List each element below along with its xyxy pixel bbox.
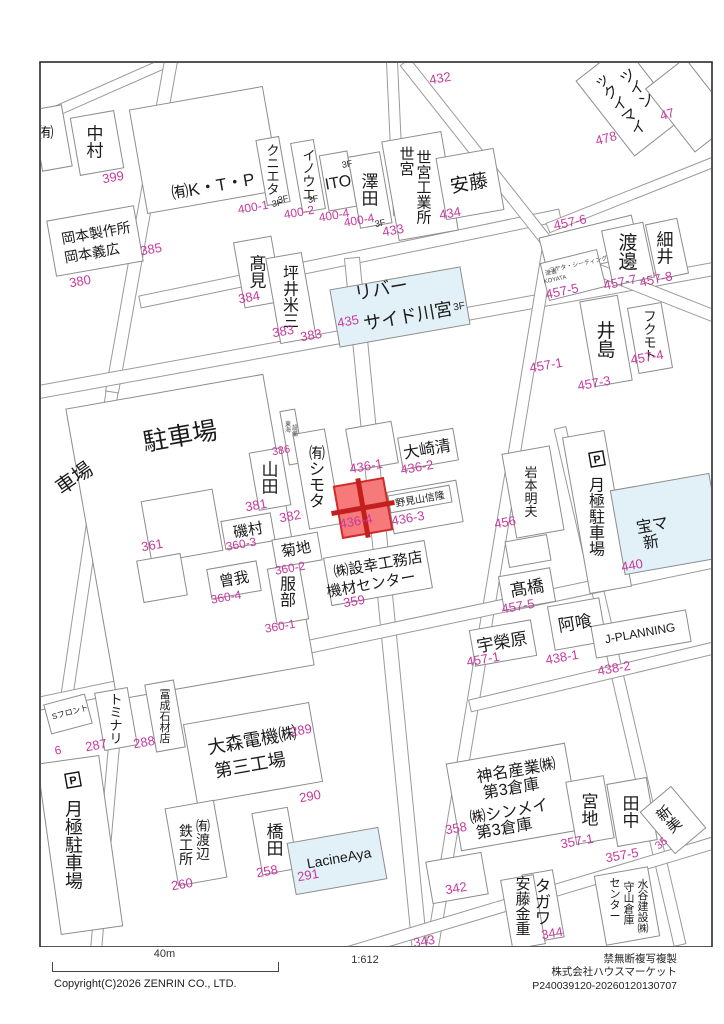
rights-line-2: 株式会社ハウスマーケット: [532, 966, 677, 979]
building-label: 月極駐車場: [589, 478, 605, 559]
building: [137, 553, 188, 602]
parcel-number: 288: [132, 733, 156, 752]
parcel-number: 382: [278, 507, 302, 526]
parcel-number: 457-3: [576, 373, 611, 394]
parcel-number: 6: [54, 743, 63, 758]
parking-icon: P: [589, 451, 605, 467]
building-label: 岩本明夫: [524, 465, 537, 519]
building-label: 髙見: [250, 254, 267, 290]
building-label: 坪井米三: [283, 265, 299, 331]
building-label: トミナリ: [109, 692, 122, 746]
building-label: 冨成石材店: [160, 688, 171, 745]
building-label: 鉄工所: [179, 823, 193, 867]
building-label: タガワ: [535, 878, 551, 928]
parcel-number: 359: [342, 592, 366, 611]
building-label: ㈲シモタ: [309, 445, 325, 511]
parcel-number: 432: [428, 69, 452, 88]
building-label: センター: [610, 876, 621, 922]
building-label: 安藤金重: [515, 876, 530, 938]
building-label: 3F: [452, 301, 465, 314]
parcel-number: 344: [540, 924, 564, 943]
building-label: 守山倉庫: [624, 879, 635, 926]
scale-ratio: 1:612: [330, 954, 400, 966]
parcel-number: 434: [438, 204, 462, 223]
scale-bar-label: 40m: [52, 948, 277, 960]
building-label: 月極駐車場: [65, 799, 83, 891]
rights-block: 禁無断複写複製 株式会社ハウスマーケット P240039120-20260120…: [532, 953, 677, 993]
building: [426, 852, 488, 903]
map-canvas: PP㈲中村399㈲K・T・P400-13F岡本製作所岡本義広385380髙見38…: [0, 0, 724, 1024]
building-label: 宮地: [582, 792, 599, 828]
building-label: ㈲渡辺: [196, 818, 210, 862]
building-label: 水谷建設㈱: [638, 878, 649, 935]
parcel-number: 290: [298, 787, 322, 806]
parcel-number: 456: [493, 513, 517, 532]
building-label: 井島: [596, 320, 615, 361]
scale-bar: [52, 962, 279, 972]
building: [505, 535, 551, 568]
parcel-number: 438-1: [544, 647, 579, 668]
parcel-number: 399: [101, 168, 125, 187]
building-label: 細井: [657, 230, 674, 266]
rights-line-1: 禁無断複写複製: [532, 953, 677, 966]
building-label: 設備: [292, 424, 298, 438]
building-label: 田中: [623, 794, 640, 830]
parcel-number: 260: [170, 875, 194, 894]
map-page: PP㈲中村399㈲K・T・P400-13F岡本製作所岡本義広385380髙見38…: [0, 0, 724, 1024]
parcel-number: 380: [68, 272, 92, 291]
building-label: 澤田: [362, 172, 379, 208]
highlighted-parcel: [326, 473, 399, 543]
rights-line-3: P240039120-20260120130707: [532, 980, 677, 993]
copyright-text: Copyright(C)2026 ZENRIN CO., LTD.: [54, 978, 237, 990]
building-label: 世宮工業所: [416, 149, 431, 226]
parking-icon: P: [65, 772, 81, 788]
parcel-number: 385: [139, 240, 163, 259]
building-label: クニエタ: [266, 143, 279, 197]
building-label: 山田: [262, 460, 279, 496]
parcel-number: 400-1: [237, 198, 270, 217]
parcel-number: 357-1: [559, 831, 594, 852]
building-label: 東海: [285, 420, 291, 434]
building: [184, 703, 323, 804]
map-footer: 40m 1:612 Copyright(C)2026 ZENRIN CO., L…: [0, 947, 724, 1024]
parcel-number: 457-1: [465, 649, 500, 670]
building-label: 中村: [87, 124, 104, 160]
map-content: PP㈲中村399㈲K・T・P400-13F岡本製作所岡本義広385380髙見38…: [27, 44, 724, 964]
parcel-number: 478: [594, 128, 619, 148]
building-label: 服部: [280, 576, 296, 610]
building-label: 渡邊: [618, 232, 637, 273]
parcel-number: 400-2: [283, 203, 316, 222]
building-label: 新: [642, 532, 661, 553]
parcel-number: 258: [255, 862, 279, 881]
building-label: 世宮: [399, 146, 414, 178]
building-label: 橋田: [267, 822, 284, 858]
parcel-number: 287: [84, 736, 108, 755]
